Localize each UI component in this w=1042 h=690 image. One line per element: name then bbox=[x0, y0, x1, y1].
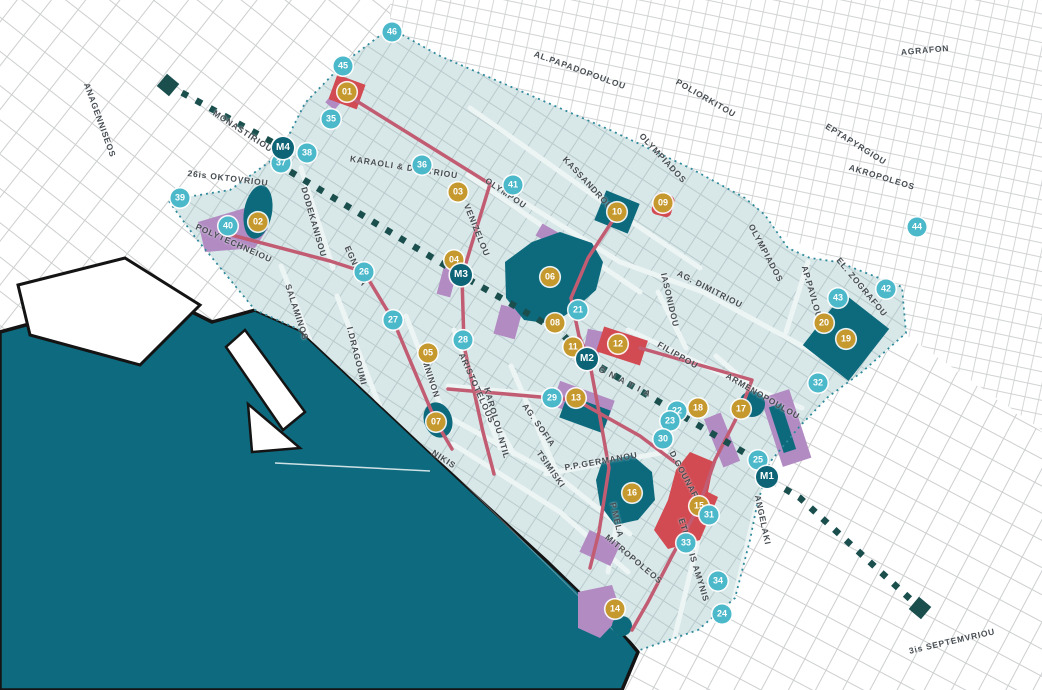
metro-station-marker-M2[interactable]: M2 bbox=[576, 348, 598, 370]
site-marker-20[interactable]: 20 bbox=[815, 314, 834, 333]
site-marker-19[interactable]: 19 bbox=[837, 330, 856, 349]
attraction-marker-42[interactable]: 42 bbox=[877, 280, 896, 299]
basemap-svg bbox=[0, 0, 1042, 690]
site-marker-13[interactable]: 13 bbox=[567, 389, 586, 408]
attraction-marker-41[interactable]: 41 bbox=[504, 176, 523, 195]
attraction-marker-21[interactable]: 21 bbox=[569, 301, 588, 320]
metro-station-marker-M1[interactable]: M1 bbox=[756, 466, 778, 488]
site-marker-18[interactable]: 18 bbox=[689, 399, 708, 418]
attraction-marker-24[interactable]: 24 bbox=[713, 605, 732, 624]
attraction-marker-26[interactable]: 26 bbox=[355, 263, 374, 282]
site-marker-17[interactable]: 17 bbox=[732, 400, 751, 419]
site-marker-14[interactable]: 14 bbox=[606, 600, 625, 619]
site-marker-01[interactable]: 01 bbox=[338, 83, 357, 102]
site-marker-07[interactable]: 07 bbox=[427, 413, 446, 432]
metro-station-marker-M4[interactable]: M4 bbox=[272, 137, 294, 159]
attraction-marker-44[interactable]: 44 bbox=[908, 218, 927, 237]
site-marker-12[interactable]: 12 bbox=[609, 335, 628, 354]
site-marker-05[interactable]: 05 bbox=[419, 344, 438, 363]
attraction-marker-36[interactable]: 36 bbox=[413, 156, 432, 175]
attraction-marker-46[interactable]: 46 bbox=[383, 23, 402, 42]
attraction-marker-34[interactable]: 34 bbox=[709, 572, 728, 591]
attraction-marker-40[interactable]: 40 bbox=[219, 217, 238, 236]
site-marker-10[interactable]: 10 bbox=[608, 203, 627, 222]
site-marker-06[interactable]: 06 bbox=[541, 268, 560, 287]
attraction-marker-43[interactable]: 43 bbox=[829, 289, 848, 308]
attraction-marker-33[interactable]: 33 bbox=[677, 534, 696, 553]
metro-station-marker-M3[interactable]: M3 bbox=[450, 264, 472, 286]
site-marker-16[interactable]: 16 bbox=[623, 484, 642, 503]
city-map: ANAGENNISEOSMONASTIRIOU26is OKTOVRIOUPOL… bbox=[0, 0, 1042, 690]
attraction-marker-39[interactable]: 39 bbox=[171, 189, 190, 208]
site-marker-08[interactable]: 08 bbox=[546, 314, 565, 333]
attraction-marker-31[interactable]: 31 bbox=[700, 506, 719, 525]
attraction-marker-28[interactable]: 28 bbox=[454, 331, 473, 350]
attraction-marker-38[interactable]: 38 bbox=[298, 144, 317, 163]
site-marker-02[interactable]: 02 bbox=[249, 213, 268, 232]
attraction-marker-23[interactable]: 23 bbox=[661, 412, 680, 431]
attraction-marker-45[interactable]: 45 bbox=[334, 57, 353, 76]
attraction-marker-35[interactable]: 35 bbox=[322, 110, 341, 129]
site-marker-09[interactable]: 09 bbox=[654, 194, 673, 213]
attraction-marker-29[interactable]: 29 bbox=[543, 389, 562, 408]
site-marker-03[interactable]: 03 bbox=[449, 183, 468, 202]
attraction-marker-32[interactable]: 32 bbox=[809, 374, 828, 393]
attraction-marker-27[interactable]: 27 bbox=[384, 311, 403, 330]
attraction-marker-30[interactable]: 30 bbox=[654, 430, 673, 449]
